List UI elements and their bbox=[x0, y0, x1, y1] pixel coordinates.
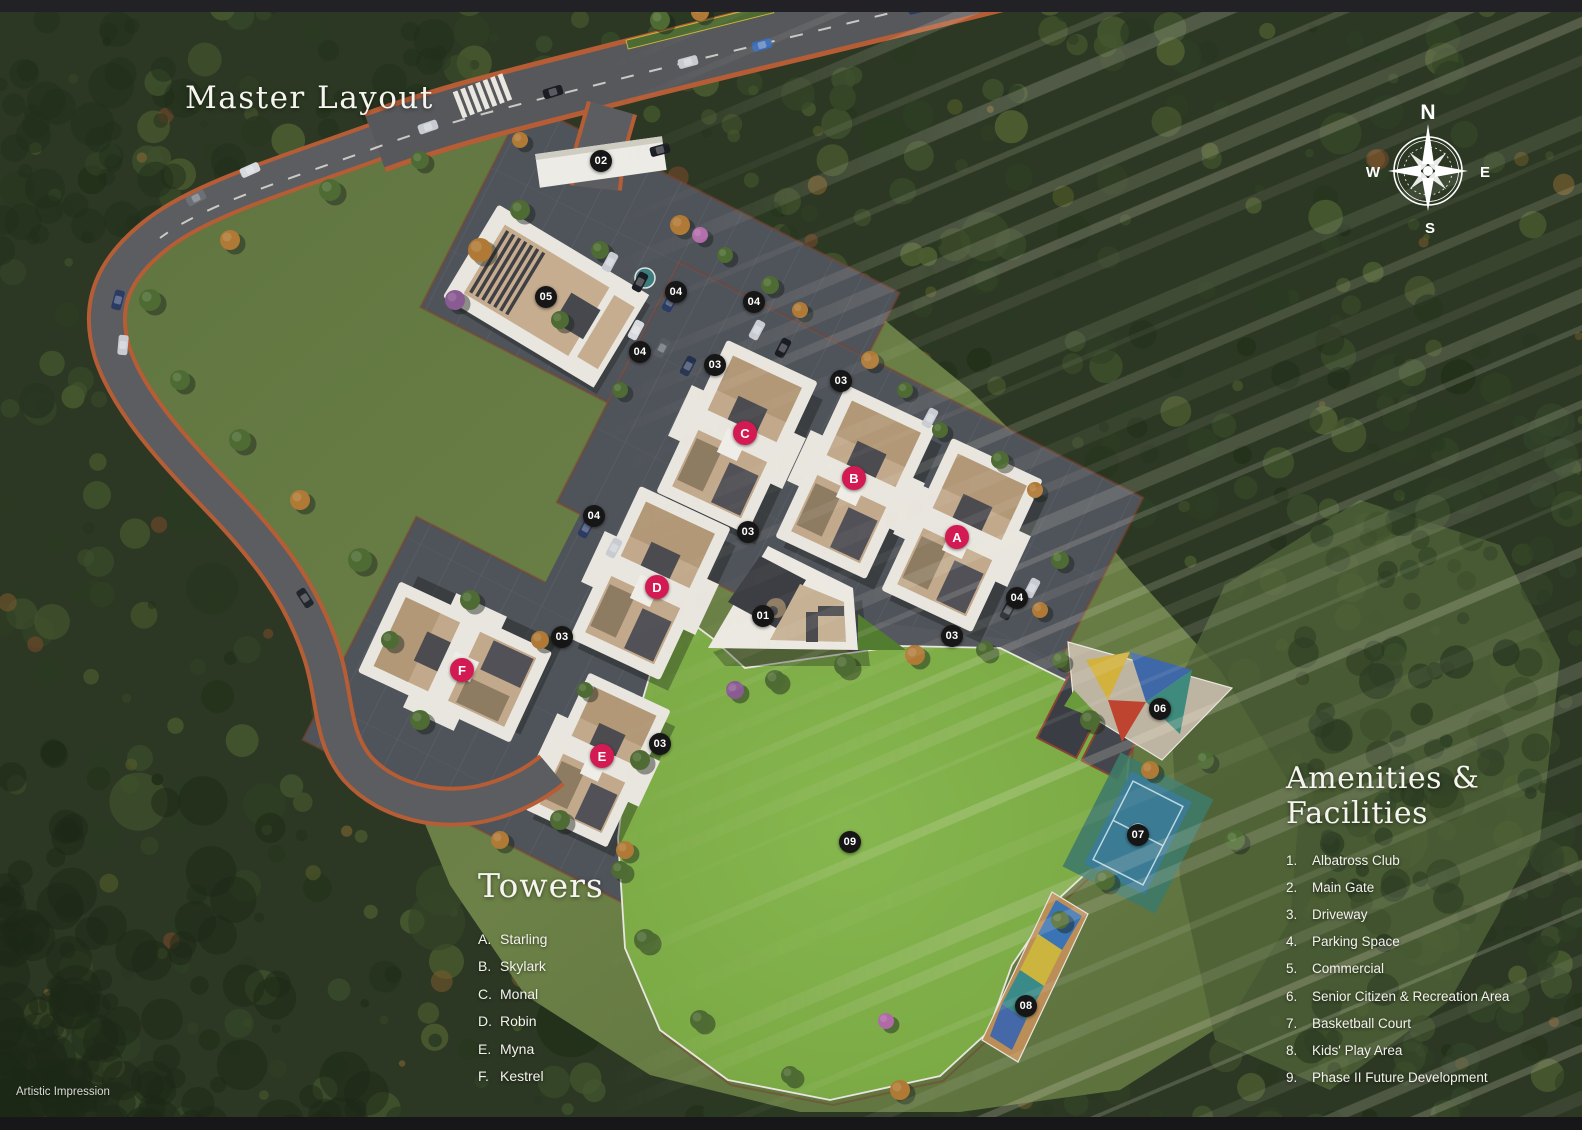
compass-e: E bbox=[1480, 164, 1490, 181]
marker-amenity-08: 08 bbox=[1015, 995, 1037, 1017]
marker-amenity-03: 03 bbox=[941, 625, 963, 647]
compass-star bbox=[1388, 124, 1468, 211]
compass-s: S bbox=[1425, 220, 1435, 237]
marker-amenity-04: 04 bbox=[1006, 587, 1028, 609]
marker-amenity-09: 09 bbox=[839, 831, 861, 853]
artistic-impression-note: Artistic Impression bbox=[16, 1086, 110, 1098]
marker-amenity-06: 06 bbox=[1149, 698, 1171, 720]
marker-amenity-03: 03 bbox=[551, 626, 573, 648]
legend-item-tower-f: F.Kestrel bbox=[478, 1063, 708, 1090]
legend-item-amenity-7: 7.Basketball Court bbox=[1286, 1010, 1582, 1037]
amenities-legend: Amenities & Facilities 1.Albatross Club … bbox=[1286, 762, 1582, 1091]
marker-amenity-02: 02 bbox=[590, 150, 612, 172]
marker-amenity-04: 04 bbox=[743, 291, 765, 313]
master-layout-plan: Master Layout Towers A.Starling B.Skylar… bbox=[0, 0, 1582, 1130]
bottom-letterbox bbox=[0, 1117, 1582, 1130]
compass-rose: N E S W bbox=[1352, 92, 1504, 252]
amenities-legend-list: 1.Albatross Club 2.Main Gate 3.Driveway … bbox=[1286, 847, 1582, 1092]
marker-tower-C: C bbox=[733, 421, 757, 445]
marker-tower-B: B bbox=[842, 466, 866, 490]
legend-item-tower-e: E.Myna bbox=[478, 1036, 708, 1063]
marker-amenity-07: 07 bbox=[1127, 824, 1149, 846]
towers-legend-list: A.Starling B.Skylark C.Monal D.Robin E.M… bbox=[478, 926, 708, 1090]
marker-amenity-04: 04 bbox=[629, 341, 651, 363]
legend-item-amenity-4: 4.Parking Space bbox=[1286, 928, 1582, 955]
legend-item-tower-b: B.Skylark bbox=[478, 953, 708, 980]
marker-tower-E: E bbox=[590, 744, 614, 768]
towers-legend-title: Towers bbox=[478, 866, 708, 905]
marker-amenity-03: 03 bbox=[649, 733, 671, 755]
marker-amenity-04: 04 bbox=[583, 505, 605, 527]
towers-legend: Towers A.Starling B.Skylark C.Monal D.Ro… bbox=[478, 866, 708, 1090]
marker-amenity-01: 01 bbox=[752, 605, 774, 627]
marker-tower-A: A bbox=[945, 525, 969, 549]
marker-tower-D: D bbox=[645, 575, 669, 599]
compass-w: W bbox=[1366, 164, 1381, 181]
legend-item-amenity-9: 9.Phase II Future Development bbox=[1286, 1064, 1582, 1091]
marker-amenity-03: 03 bbox=[737, 521, 759, 543]
marker-amenity-04: 04 bbox=[665, 281, 687, 303]
marker-amenity-03: 03 bbox=[830, 370, 852, 392]
legend-item-tower-a: A.Starling bbox=[478, 926, 708, 953]
page-title: Master Layout bbox=[185, 80, 434, 116]
amenities-legend-title: Amenities & Facilities bbox=[1286, 762, 1582, 832]
legend-item-tower-d: D.Robin bbox=[478, 1008, 708, 1035]
top-letterbox bbox=[0, 0, 1582, 12]
marker-amenity-03: 03 bbox=[704, 354, 726, 376]
legend-item-amenity-1: 1.Albatross Club bbox=[1286, 847, 1582, 874]
legend-item-tower-c: C.Monal bbox=[478, 981, 708, 1008]
legend-item-amenity-3: 3.Driveway bbox=[1286, 901, 1582, 928]
marker-amenity-05: 05 bbox=[535, 286, 557, 308]
legend-item-amenity-2: 2.Main Gate bbox=[1286, 874, 1582, 901]
marker-tower-F: F bbox=[450, 658, 474, 682]
legend-item-amenity-8: 8.Kids' Play Area bbox=[1286, 1037, 1582, 1064]
legend-item-amenity-6: 6.Senior Citizen & Recreation Area bbox=[1286, 983, 1582, 1010]
legend-item-amenity-5: 5.Commercial bbox=[1286, 955, 1582, 982]
compass-n: N bbox=[1420, 101, 1435, 124]
